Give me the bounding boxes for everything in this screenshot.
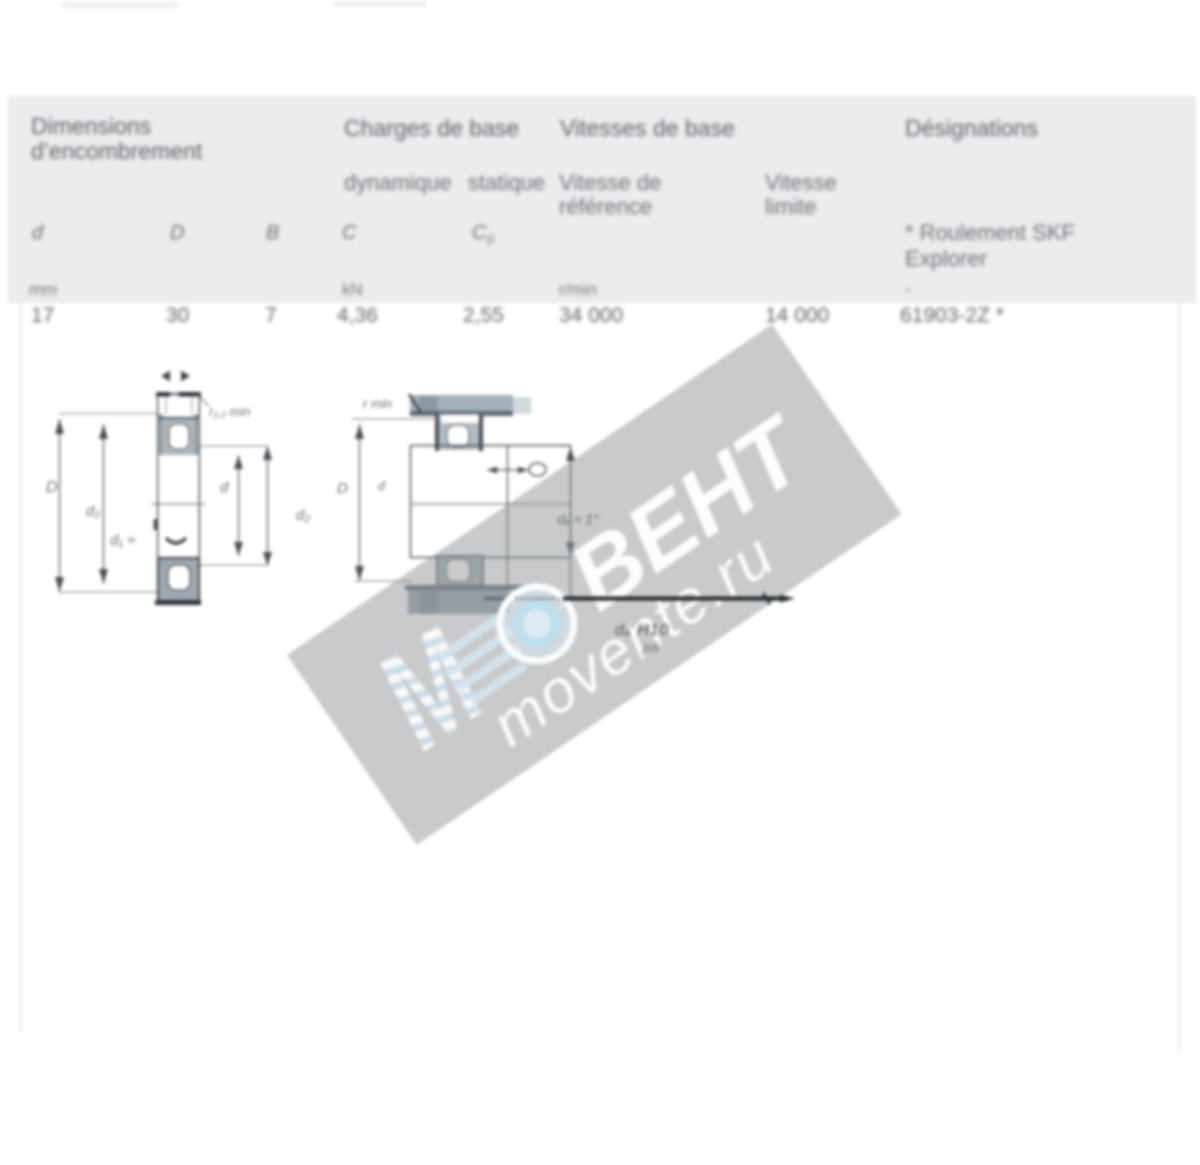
svg-text:js6: js6 [641, 640, 660, 655]
svg-text:D: D [337, 480, 348, 497]
svg-text:d: d [220, 479, 229, 496]
svg-text:d₁ ≈: d₁ ≈ [110, 532, 135, 549]
svg-text:d₂: d₂ [296, 507, 310, 524]
svg-text:dₐ H10: dₐ H10 [615, 622, 669, 639]
svg-text:r min: r min [363, 396, 392, 411]
svg-text:d₂: d₂ [86, 503, 100, 520]
svg-text:d: d [378, 478, 386, 493]
svg-text:D: D [46, 479, 58, 496]
svg-text:r₁,₂ min: r₁,₂ min [209, 404, 251, 419]
